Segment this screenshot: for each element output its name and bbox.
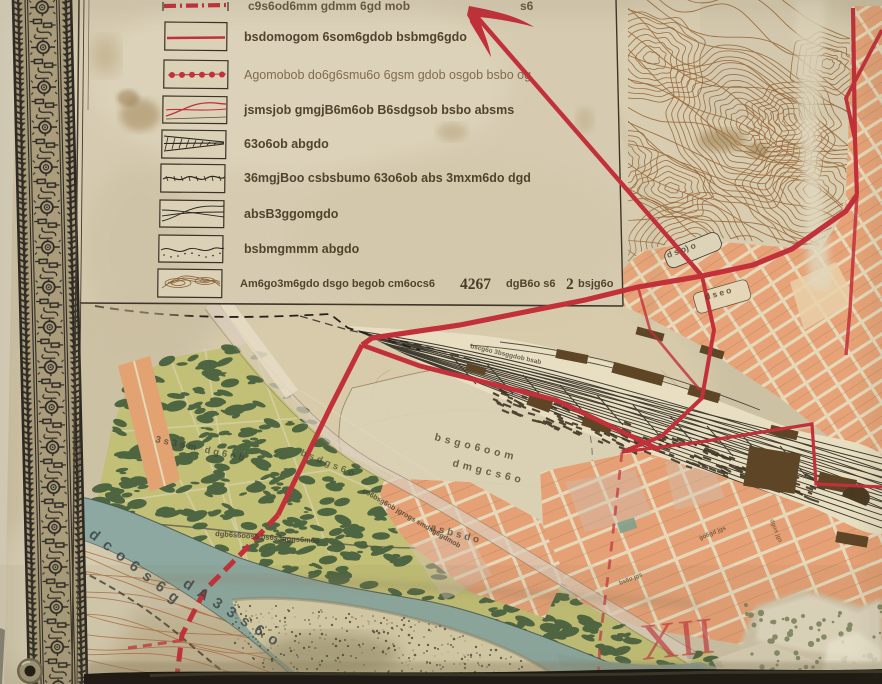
svg-text:Am6go3m6gdo dsgo begob cm6ocs6: Am6go3m6gdo dsgo begob cm6ocs6	[240, 278, 435, 290]
svg-text:jsmsjob gmgjB6m6ob B6sdgsob: jsmsjob gmgjB6m6ob B6sdgsob bsbo absms	[243, 103, 514, 117]
svg-text:dgB6o s6: dgB6o s6	[506, 278, 556, 290]
svg-text:absB3ggomgdo: absB3ggomgdo	[244, 207, 339, 221]
svg-text:bsdomogom 6som6gdob bsbmg6gd: bsdomogom 6som6gdob bsbmg6gdo	[244, 30, 467, 44]
svg-text:bsjg6o: bsjg6o	[578, 278, 614, 290]
svg-text:bsbmgmmm abgdo: bsbmgmmm abgdo	[244, 242, 360, 256]
svg-text:36mgjBoo csbsbumo 63o6ob ab: 36mgjBoo csbsbumo 63o6ob abs 3mxm6do dgd	[244, 171, 531, 185]
svg-text:63o6ob abgdo: 63o6ob abgdo	[244, 137, 329, 151]
svg-text:2: 2	[566, 276, 574, 293]
svg-text:4267: 4267	[460, 276, 491, 293]
svg-text:Agomobob do6g6smu6o 6gsm gdo: Agomobob do6g6smu6o 6gsm gdob osgob bsbo…	[244, 68, 531, 82]
